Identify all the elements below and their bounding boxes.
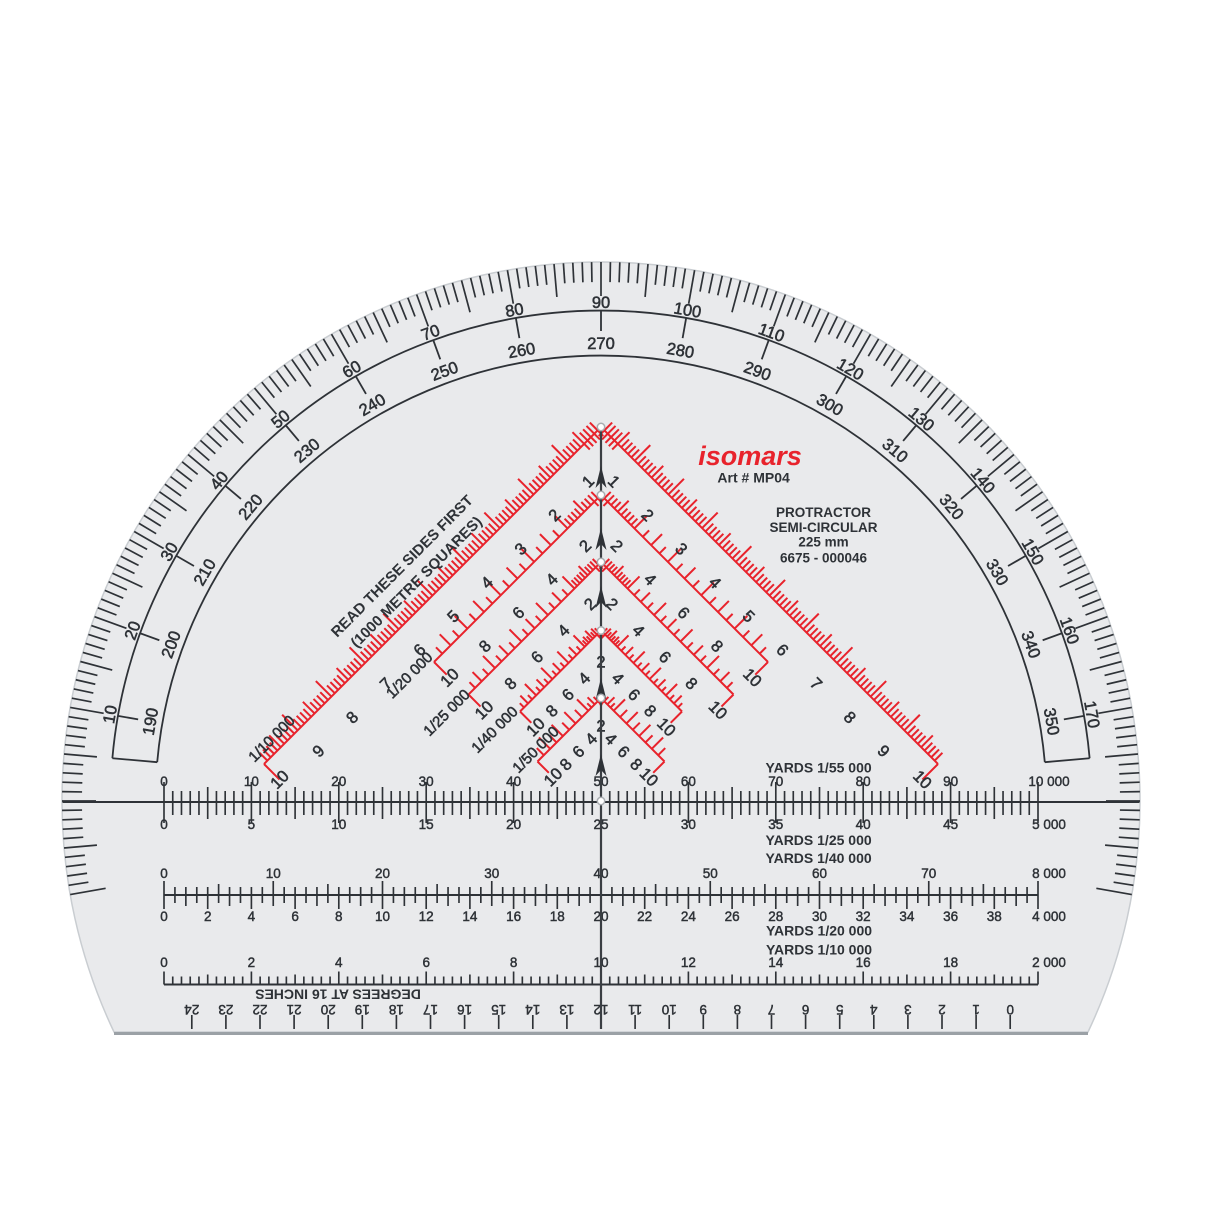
svg-text:90: 90	[592, 294, 610, 312]
svg-text:6675 - 000046: 6675 - 000046	[780, 551, 868, 566]
svg-text:0: 0	[1006, 1002, 1014, 1017]
svg-text:60: 60	[681, 774, 696, 789]
svg-text:6: 6	[291, 909, 299, 924]
svg-text:5 000: 5 000	[1032, 817, 1066, 832]
svg-text:40: 40	[856, 817, 871, 832]
svg-text:16: 16	[457, 1002, 472, 1017]
svg-text:30: 30	[484, 866, 499, 881]
svg-text:19: 19	[355, 1002, 370, 1017]
svg-text:YARDS 1/10 000: YARDS 1/10 000	[766, 941, 872, 957]
svg-text:10: 10	[375, 909, 390, 924]
svg-text:0: 0	[160, 866, 168, 881]
svg-text:YARDS 1/25 000: YARDS 1/25 000	[766, 832, 872, 848]
svg-text:38: 38	[987, 909, 1002, 924]
svg-text:270: 270	[587, 335, 615, 353]
svg-text:0: 0	[160, 817, 168, 832]
svg-text:22: 22	[252, 1002, 267, 1017]
svg-text:8: 8	[510, 955, 518, 970]
svg-text:5: 5	[836, 1002, 844, 1017]
svg-text:10: 10	[100, 704, 121, 725]
svg-text:21: 21	[287, 1002, 302, 1017]
svg-text:10: 10	[331, 817, 346, 832]
svg-text:6: 6	[422, 955, 430, 970]
svg-text:0: 0	[160, 955, 168, 970]
svg-text:20: 20	[331, 774, 346, 789]
svg-text:4: 4	[335, 955, 343, 970]
svg-text:20: 20	[375, 866, 390, 881]
svg-text:5: 5	[248, 817, 256, 832]
svg-text:30: 30	[681, 817, 696, 832]
svg-text:2: 2	[248, 955, 256, 970]
svg-text:2: 2	[204, 909, 212, 924]
svg-text:50: 50	[703, 866, 718, 881]
svg-text:SEMI-CIRCULAR: SEMI-CIRCULAR	[770, 520, 878, 535]
svg-text:70: 70	[921, 866, 936, 881]
svg-text:15: 15	[419, 817, 434, 832]
svg-text:11: 11	[628, 1002, 642, 1017]
svg-text:20: 20	[321, 1002, 336, 1017]
svg-text:34: 34	[899, 909, 915, 924]
svg-text:18: 18	[943, 955, 958, 970]
svg-text:12: 12	[681, 955, 696, 970]
svg-text:10: 10	[266, 866, 281, 881]
svg-text:14: 14	[525, 1002, 541, 1017]
svg-text:6: 6	[802, 1002, 810, 1017]
svg-text:35: 35	[768, 817, 783, 832]
svg-text:YARDS 1/20 000: YARDS 1/20 000	[766, 923, 872, 939]
svg-text:9: 9	[700, 1002, 708, 1017]
svg-text:7: 7	[768, 1002, 776, 1017]
svg-text:4 000: 4 000	[1032, 909, 1066, 924]
svg-text:YARDS 1/40 000: YARDS 1/40 000	[766, 850, 872, 866]
svg-text:12: 12	[419, 909, 434, 924]
svg-text:Art # MP04: Art # MP04	[717, 470, 790, 486]
svg-text:1: 1	[972, 1002, 980, 1017]
svg-text:8 000: 8 000	[1032, 866, 1066, 881]
svg-text:YARDS 1/55 000: YARDS 1/55 000	[766, 760, 872, 776]
svg-text:80: 80	[856, 774, 871, 789]
svg-text:80: 80	[504, 300, 525, 321]
svg-text:2: 2	[938, 1002, 946, 1017]
svg-text:15: 15	[491, 1002, 506, 1017]
svg-text:14: 14	[462, 909, 478, 924]
svg-text:18: 18	[550, 909, 565, 924]
svg-text:10 000: 10 000	[1028, 774, 1069, 789]
svg-text:70: 70	[768, 774, 783, 789]
svg-text:13: 13	[559, 1002, 574, 1017]
svg-text:isomars: isomars	[698, 441, 802, 471]
svg-text:22: 22	[637, 909, 652, 924]
svg-text:8: 8	[335, 909, 343, 924]
svg-text:4: 4	[248, 909, 256, 924]
svg-text:0: 0	[160, 774, 168, 789]
svg-text:17: 17	[423, 1002, 438, 1017]
svg-text:PROTRACTOR: PROTRACTOR	[776, 505, 871, 520]
svg-text:24: 24	[681, 909, 697, 924]
svg-text:225 mm: 225 mm	[798, 535, 848, 550]
svg-text:60: 60	[812, 866, 827, 881]
svg-text:26: 26	[725, 909, 740, 924]
svg-text:20: 20	[506, 817, 521, 832]
svg-text:45: 45	[943, 817, 958, 832]
svg-text:0: 0	[160, 909, 168, 924]
svg-text:4: 4	[870, 1002, 878, 1017]
svg-text:8: 8	[734, 1002, 742, 1017]
svg-text:23: 23	[218, 1002, 233, 1017]
svg-text:10: 10	[662, 1002, 677, 1017]
svg-text:10: 10	[244, 774, 259, 789]
svg-text:40: 40	[506, 774, 521, 789]
svg-text:24: 24	[184, 1002, 200, 1017]
svg-text:30: 30	[419, 774, 434, 789]
svg-text:DEGREES AT 16 INCHES: DEGREES AT 16 INCHES	[255, 987, 421, 1003]
svg-text:36: 36	[943, 909, 958, 924]
svg-text:90: 90	[943, 774, 958, 789]
svg-text:2 000: 2 000	[1032, 955, 1066, 970]
svg-text:16: 16	[506, 909, 521, 924]
svg-text:18: 18	[389, 1002, 404, 1017]
svg-text:3: 3	[904, 1002, 912, 1017]
